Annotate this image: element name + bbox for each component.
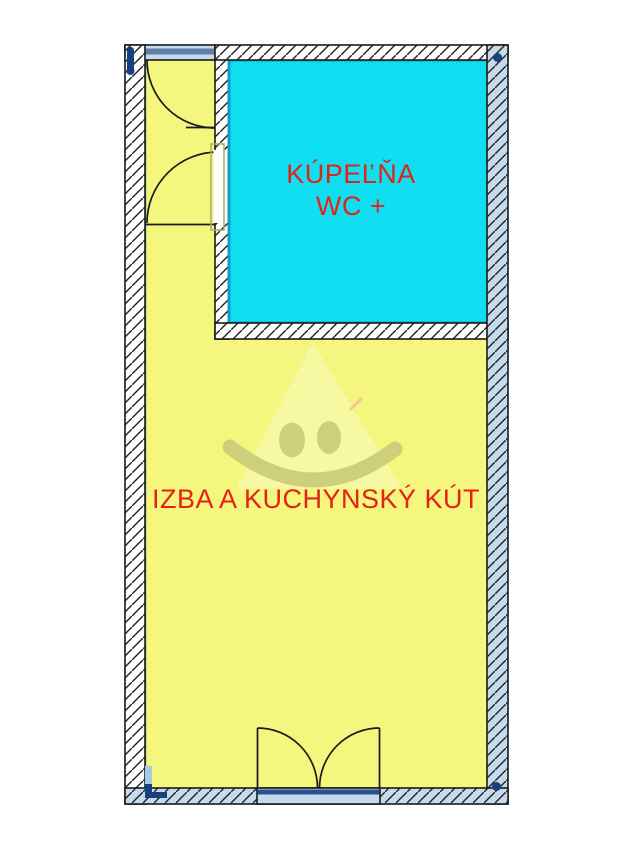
floorplan-page: IZBA A KUCHYNSKÝ KÚT KÚPEĽŇA WC + (0, 0, 627, 867)
watermark-right-eye (317, 421, 341, 454)
watermark-left-eye (279, 423, 305, 458)
room-bathroom-label-line2: WC + (316, 191, 386, 221)
room-living-label: IZBA A KUCHYNSKÝ KÚT (152, 483, 480, 514)
floorplan-canvas: IZBA A KUCHYNSKÝ KÚT KÚPEĽŇA WC + (0, 0, 627, 867)
door-sill-band (258, 790, 380, 795)
right-wall-hatch (487, 45, 508, 804)
top-wall-hatch (215, 45, 508, 60)
bathroom-bottom-wall (215, 323, 508, 339)
corner-dot-top-right (493, 53, 502, 62)
corner-dot-bottom-right (492, 782, 501, 791)
corner-dot-top-left (127, 67, 135, 75)
left-wall-hatch (125, 45, 145, 804)
bathroom-bottom-wall-hatch (215, 323, 508, 339)
room-bathroom-label-line1: KÚPEĽŇA (286, 158, 416, 189)
